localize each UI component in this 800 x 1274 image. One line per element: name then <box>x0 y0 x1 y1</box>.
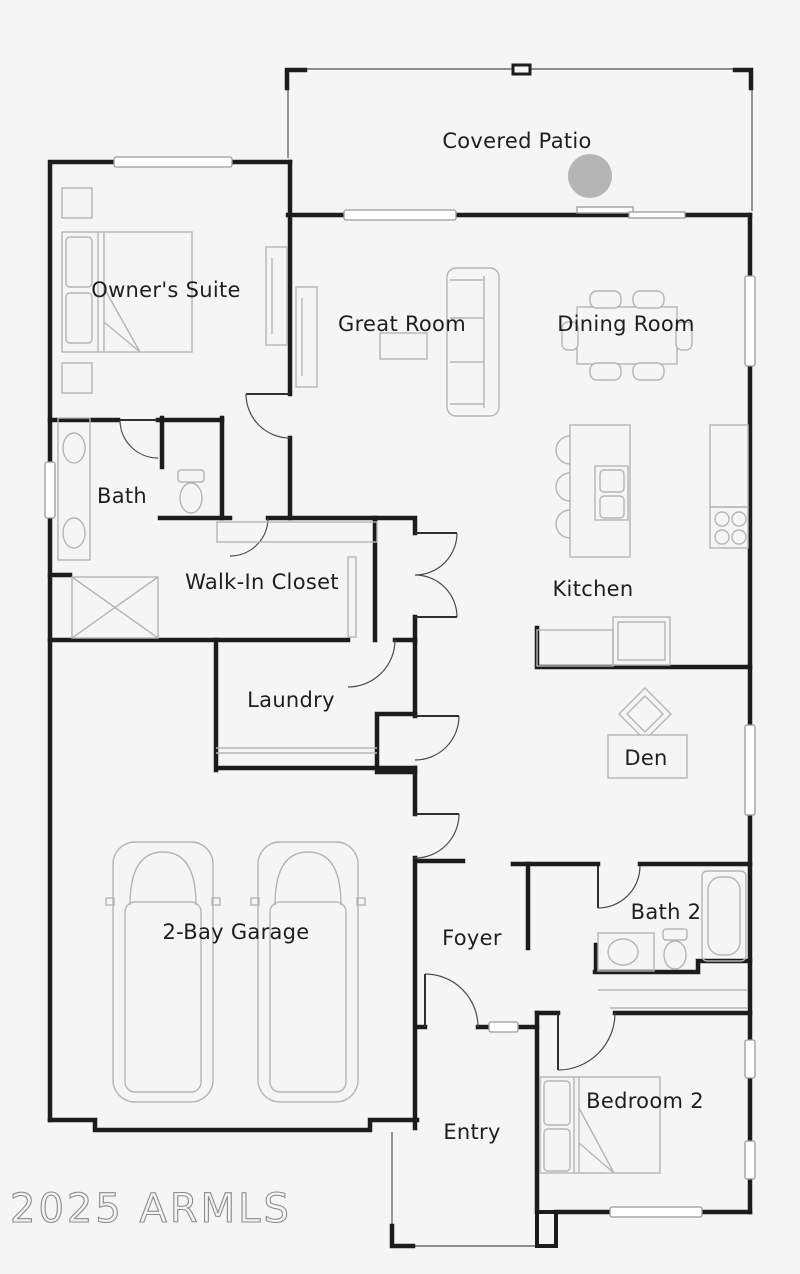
label-garage: 2-Bay Garage <box>162 920 309 944</box>
label-laundry: Laundry <box>247 688 335 712</box>
door-walk-in-closet <box>230 518 268 556</box>
label-entry: Entry <box>443 1120 500 1144</box>
sofa-icon <box>447 268 499 416</box>
porch-column <box>537 1212 556 1246</box>
vanity-icon <box>58 418 90 560</box>
watermark-text: 2025 ARMLS <box>10 1186 292 1232</box>
car-icon-2 <box>251 842 365 1102</box>
dresser-icon <box>266 247 287 345</box>
window-bedroom2-south <box>610 1207 702 1217</box>
label-foyer: Foyer <box>442 926 502 950</box>
window-dining <box>745 276 755 366</box>
floor-plan-page: Covered Patio Owner's Suite Great Room D… <box>0 0 800 1274</box>
label-covered-patio: Covered Patio <box>442 129 591 153</box>
label-dining-room: Dining Room <box>557 312 695 336</box>
desk-chair-icon <box>619 688 671 740</box>
laundry-counter-icon <box>216 748 377 753</box>
room-labels: Covered Patio Owner's Suite Great Room D… <box>91 129 704 1144</box>
patio-post-right <box>735 70 751 88</box>
doors <box>120 394 640 1070</box>
coffee-table-icon <box>380 333 427 359</box>
label-owners-suite: Owner's Suite <box>91 278 241 302</box>
double-door-closet <box>415 533 457 617</box>
window-entry-sidelite <box>489 1022 518 1032</box>
door-bedroom2 <box>558 1013 615 1070</box>
media-console-icon <box>296 287 317 387</box>
refrigerator-counter-icon <box>710 425 748 507</box>
nightstand-icon-2 <box>62 363 92 393</box>
door-coat-closet <box>415 716 459 760</box>
label-bath-2: Bath 2 <box>631 900 702 924</box>
window-bedroom2-east-a <box>745 1040 755 1078</box>
window-bedroom2-east-b <box>745 1141 755 1179</box>
patio-column-circle-icon <box>568 154 612 198</box>
door-bath <box>120 420 158 458</box>
bath2-toilet-icon <box>663 929 687 969</box>
entry-porch-outline <box>392 1132 556 1246</box>
label-kitchen: Kitchen <box>552 577 633 601</box>
range-counter-icon <box>537 617 670 666</box>
cooktop-icon <box>710 507 748 548</box>
label-bedroom-2: Bedroom 2 <box>586 1089 704 1113</box>
patio-post-center <box>513 65 530 74</box>
car-icon <box>106 842 220 1102</box>
door-garage-entry <box>415 814 459 858</box>
label-great-room: Great Room <box>338 312 466 336</box>
window-great-room <box>344 210 456 220</box>
nightstand-icon <box>62 188 92 218</box>
label-bath: Bath <box>97 484 147 508</box>
window-bath <box>45 462 55 518</box>
label-walk-in-closet: Walk-In Closet <box>185 570 339 594</box>
floor-plan-svg: Covered Patio Owner's Suite Great Room D… <box>0 0 800 1274</box>
window-den <box>745 725 755 815</box>
door-front-entry <box>425 974 478 1027</box>
closet-rod-icon <box>598 990 748 1008</box>
door-owners-suite <box>246 394 290 438</box>
window-owners-suite <box>114 157 232 167</box>
patio-post-left <box>287 70 305 88</box>
toilet-icon <box>178 470 204 513</box>
bath2-vanity-icon <box>598 933 654 971</box>
label-den: Den <box>624 746 667 770</box>
door-laundry <box>348 640 395 687</box>
porch-post-left <box>392 1226 413 1246</box>
bathtub-icon <box>702 871 746 961</box>
kitchen-island-icon <box>556 425 630 557</box>
shower-icon <box>72 577 158 638</box>
